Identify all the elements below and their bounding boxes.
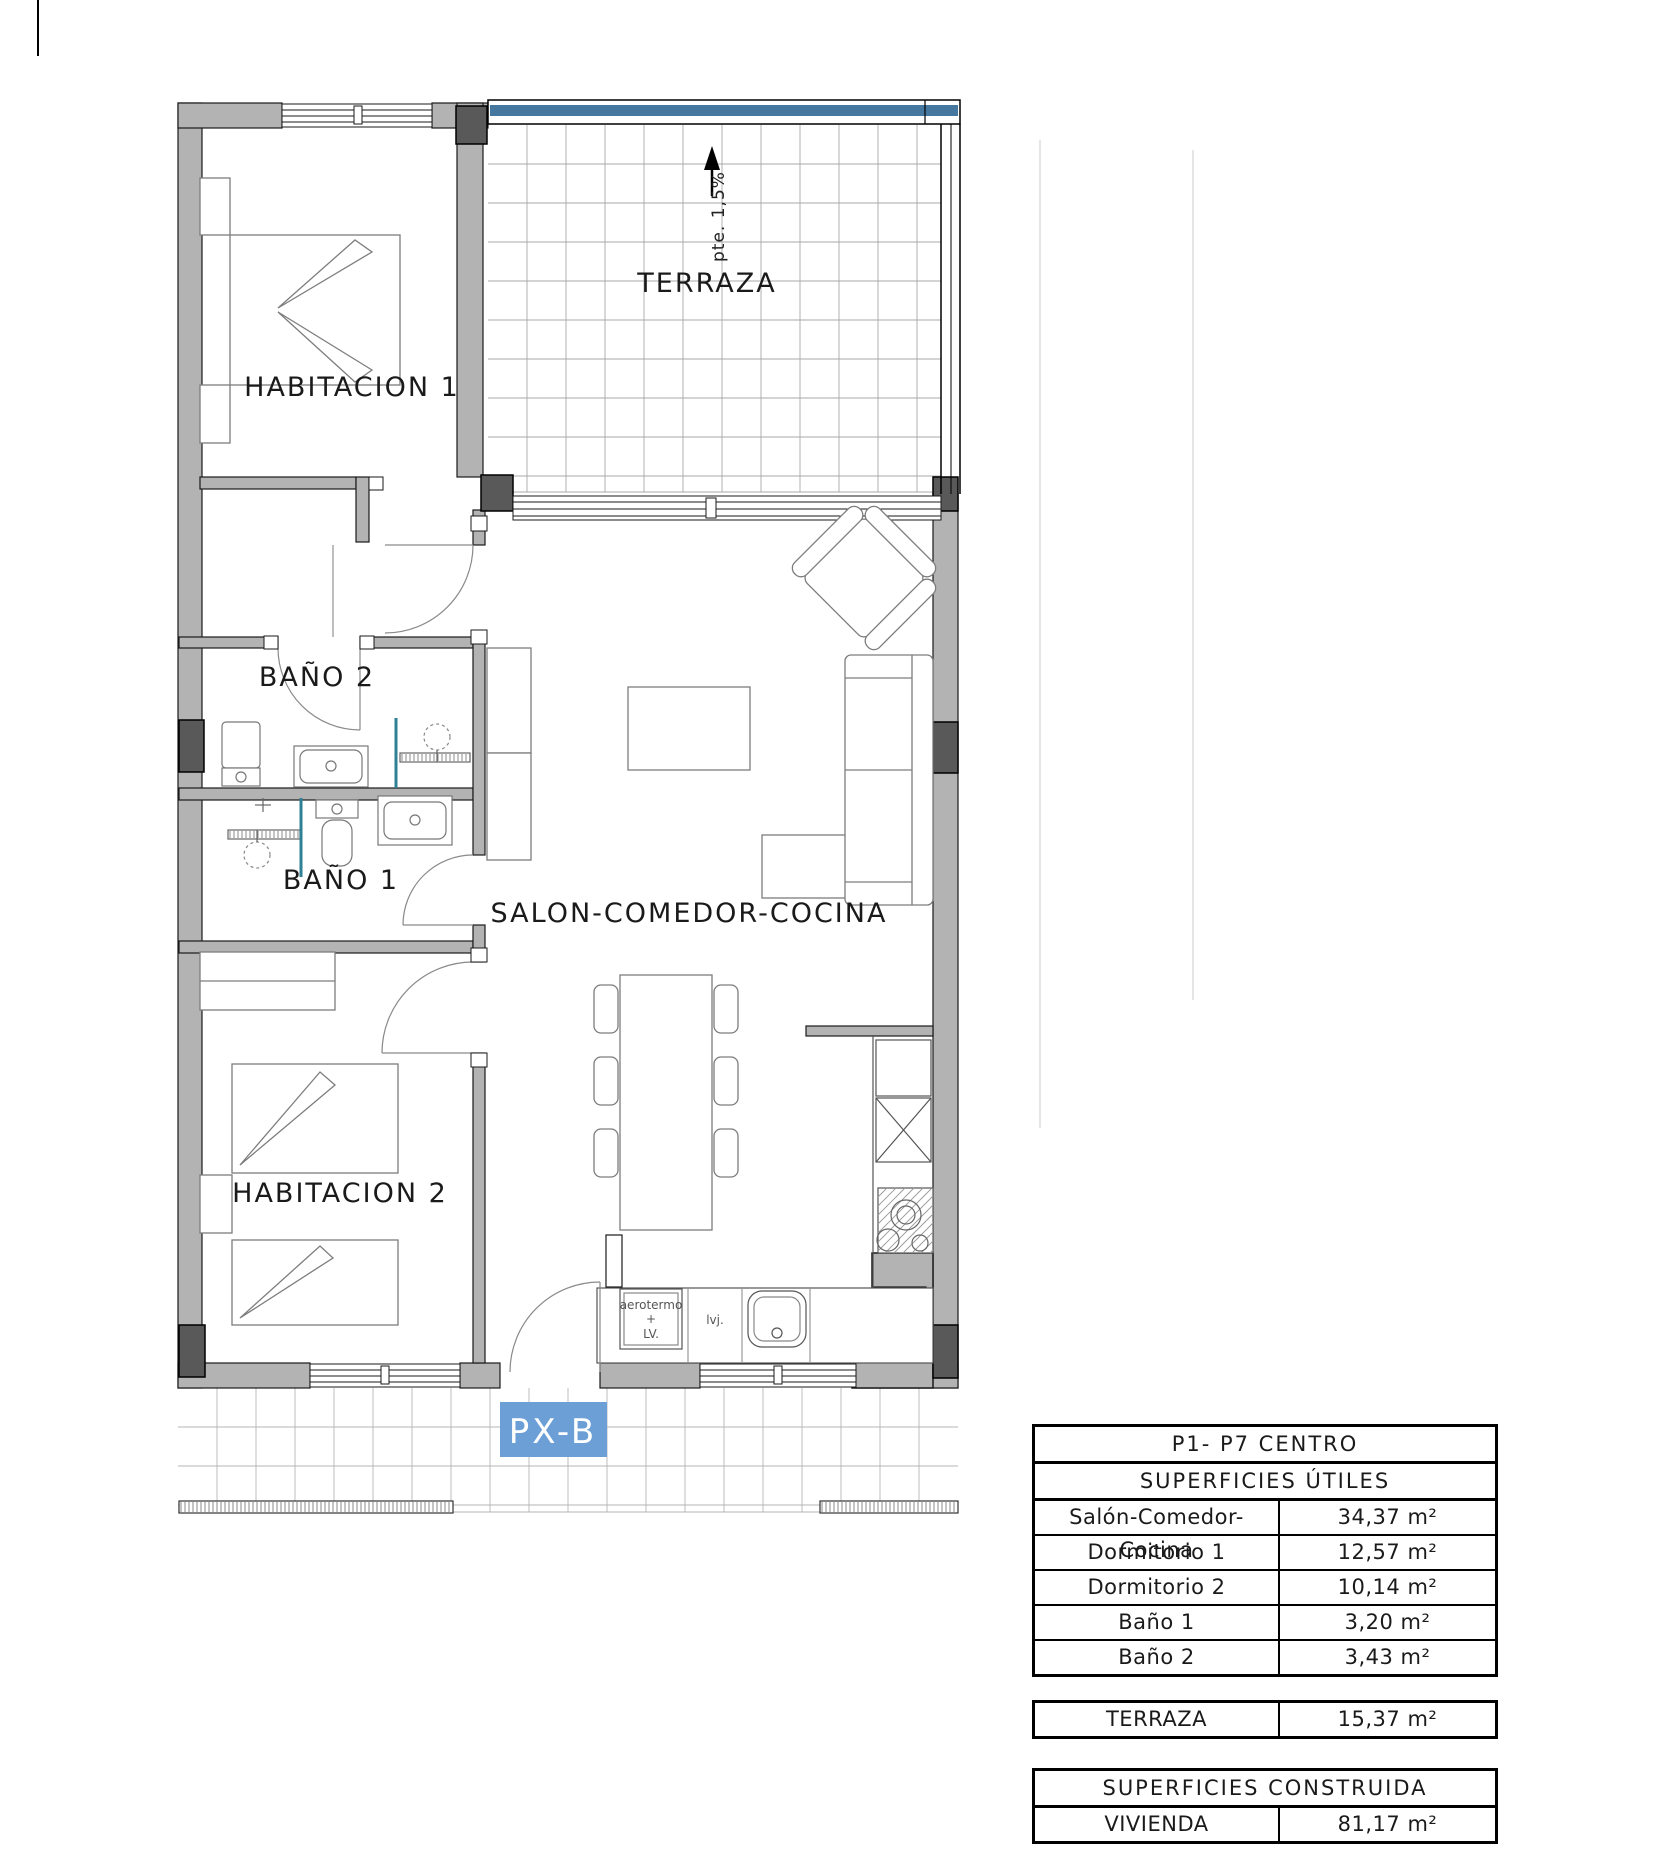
- door-hall-salon: [385, 545, 473, 633]
- table-row: Baño 1 3,20 m²: [1035, 1606, 1495, 1641]
- kitchen-tall-units: [487, 648, 531, 860]
- aerotermo-note-line3: LV.: [643, 1327, 659, 1341]
- lvj-note: lvj.: [706, 1313, 724, 1327]
- fridge-icon: [876, 1098, 931, 1162]
- kerb-hatch-right: [820, 1501, 958, 1513]
- room-label-habitacion2: HABITACION 2: [232, 1178, 448, 1209]
- row-label: Dormitorio 1: [1035, 1536, 1280, 1569]
- table-row: Dormitorio 2 10,14 m²: [1035, 1571, 1495, 1606]
- sofa: [762, 655, 933, 905]
- aerotermo-note-line2: +: [646, 1312, 656, 1326]
- unit-code-label: PX-B: [509, 1412, 597, 1452]
- room-label-terraza: TERRAZA: [636, 268, 776, 299]
- areas-table-construida: SUPERFICIES CONSTRUIDA VIVIENDA 81,17 m²: [1032, 1768, 1498, 1844]
- table-row: TERRAZA 15,37 m²: [1035, 1703, 1495, 1736]
- row-label: TERRAZA: [1035, 1703, 1280, 1736]
- unit-code-badge: PX-B: [500, 1402, 607, 1457]
- table-row: VIVIENDA 81,17 m²: [1035, 1808, 1495, 1841]
- table-row: Baño 2 3,43 m²: [1035, 1641, 1495, 1674]
- hob-icon: [877, 1188, 933, 1253]
- row-value: 15,37 m²: [1280, 1703, 1495, 1736]
- row-value: 10,14 m²: [1280, 1571, 1495, 1604]
- row-label: Baño 1: [1035, 1606, 1280, 1639]
- room-label-bano2: BAÑO 2: [259, 661, 375, 693]
- row-value: 3,43 m²: [1280, 1641, 1495, 1674]
- room-label-habitacion1: HABITACION 1: [244, 372, 460, 403]
- row-label: Dormitorio 2: [1035, 1571, 1280, 1604]
- room-label-salon: SALON-COMEDOR-COCINA: [491, 898, 888, 929]
- row-label: VIVIENDA: [1035, 1808, 1280, 1841]
- door-entrance: [510, 1282, 600, 1372]
- coffee-table: [628, 687, 750, 770]
- slope-arrow-icon: [704, 146, 720, 170]
- window-habitacion2: [310, 1364, 460, 1387]
- table-subtitle: SUPERFICIES ÚTILES: [1035, 1464, 1495, 1501]
- row-value: 12,57 m²: [1280, 1536, 1495, 1569]
- window-habitacion1: [282, 104, 432, 127]
- areas-table-terraza: TERRAZA 15,37 m²: [1032, 1700, 1498, 1739]
- door-habitacion2: [382, 962, 473, 1053]
- table-row: Dormitorio 1 12,57 m²: [1035, 1536, 1495, 1571]
- row-value: 3,20 m²: [1280, 1606, 1495, 1639]
- adjacent-structure-lines: [1040, 140, 1193, 1128]
- row-value: 34,37 m²: [1280, 1501, 1495, 1534]
- aerotermo-note-line1: aerotermo: [620, 1298, 683, 1312]
- table-row: Salón-Comedor-Cocina 34,37 m²: [1035, 1501, 1495, 1536]
- table-title: P1- P7 CENTRO: [1035, 1427, 1495, 1464]
- row-label: Baño 2: [1035, 1641, 1280, 1674]
- door-bano1: [403, 855, 473, 925]
- table-title: SUPERFICIES CONSTRUIDA: [1035, 1771, 1495, 1808]
- dining-table: [594, 975, 738, 1230]
- window-kitchen: [700, 1364, 856, 1387]
- row-value: 81,17 m²: [1280, 1808, 1495, 1841]
- kitchen-sink-icon: [748, 1291, 806, 1347]
- floorplan-sheet: HABITACION 1 TERRAZA BAÑO 2 BAÑO 1 SALON…: [0, 0, 1653, 1872]
- room-label-bano1: BAÑO 1: [283, 864, 399, 896]
- slope-note: pte. 1,5%: [709, 171, 729, 262]
- bed-habitacion1: [200, 178, 400, 443]
- slope-annotation: pte. 1,5%: [704, 146, 729, 262]
- wardrobe-habitacion2: [200, 952, 335, 1010]
- kerb-hatch-left: [179, 1501, 453, 1513]
- areas-table-utiles: P1- P7 CENTRO SUPERFICIES ÚTILES Salón-C…: [1032, 1424, 1498, 1677]
- row-label: Salón-Comedor-Cocina: [1035, 1501, 1280, 1534]
